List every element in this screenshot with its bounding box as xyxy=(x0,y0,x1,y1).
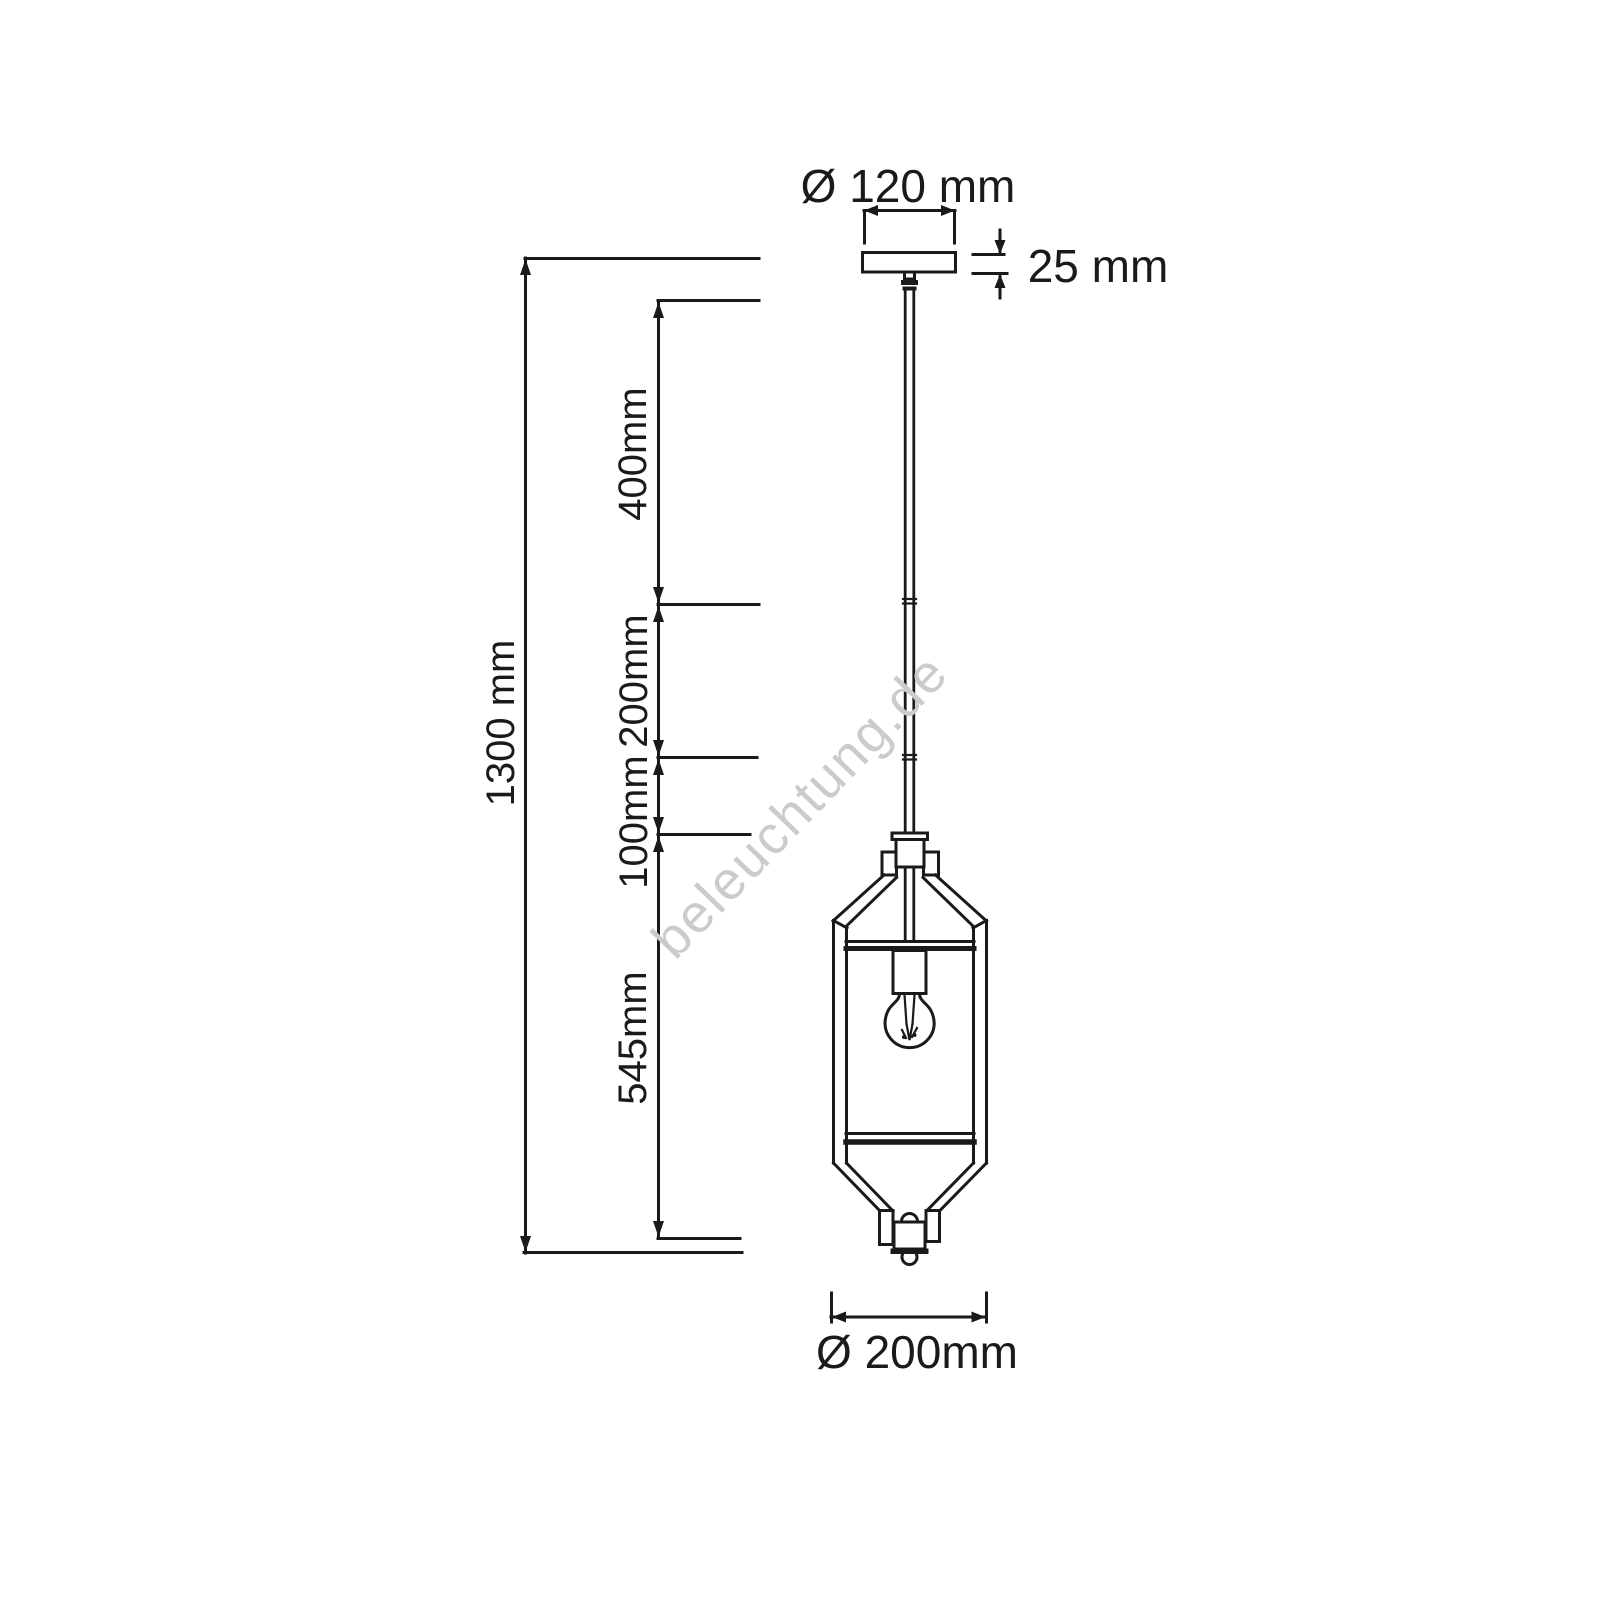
dimension-lantern-diameter-lines xyxy=(831,1293,987,1323)
segment-545mm-label: 545mm xyxy=(613,971,653,1104)
ceiling-canopy xyxy=(863,253,956,291)
lantern-diameter-label: Ø 200mm xyxy=(816,1329,1018,1375)
light-bulb xyxy=(885,951,934,1048)
suspension-rod xyxy=(903,291,916,834)
dimension-segments-lines xyxy=(653,301,759,1239)
canopy-height-label: 25 mm xyxy=(1028,243,1169,289)
segment-400mm-label: 400mm xyxy=(613,387,653,520)
dimension-canopy-height-lines xyxy=(973,230,1007,298)
total-height-label: 1300 mm xyxy=(481,640,521,807)
segment-100mm-label: 100mm xyxy=(614,755,654,888)
canopy-diameter-label: Ø 120 mm xyxy=(801,163,1016,209)
segment-200mm-label: 200mm xyxy=(614,614,654,747)
technical-drawing-page: Ø 120 mm 25 mm 1300 mm 400mm 200mm 100mm… xyxy=(0,0,1600,1600)
bottom-finial xyxy=(880,1211,940,1265)
